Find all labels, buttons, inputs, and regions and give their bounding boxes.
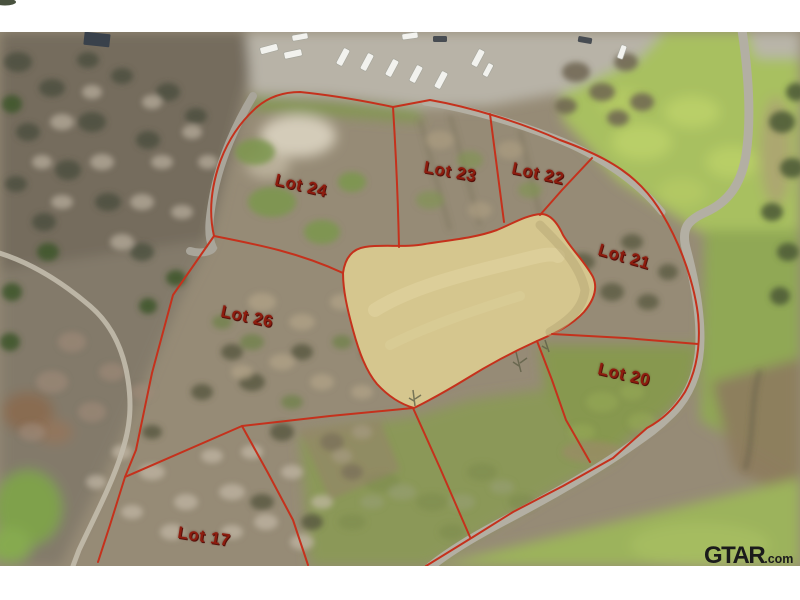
watermark: GTAR.com	[704, 542, 793, 570]
aerial-photo	[0, 0, 800, 600]
real-estate-listing-photo: Lot 24 Lot 23 Lot 22 Lot 21 Lot 20 Lot 2…	[0, 0, 800, 600]
photo-area	[0, 30, 800, 567]
watermark-suffix: .com	[764, 552, 793, 566]
watermark-brand: GTAR	[704, 542, 764, 570]
building-roof	[83, 32, 110, 48]
